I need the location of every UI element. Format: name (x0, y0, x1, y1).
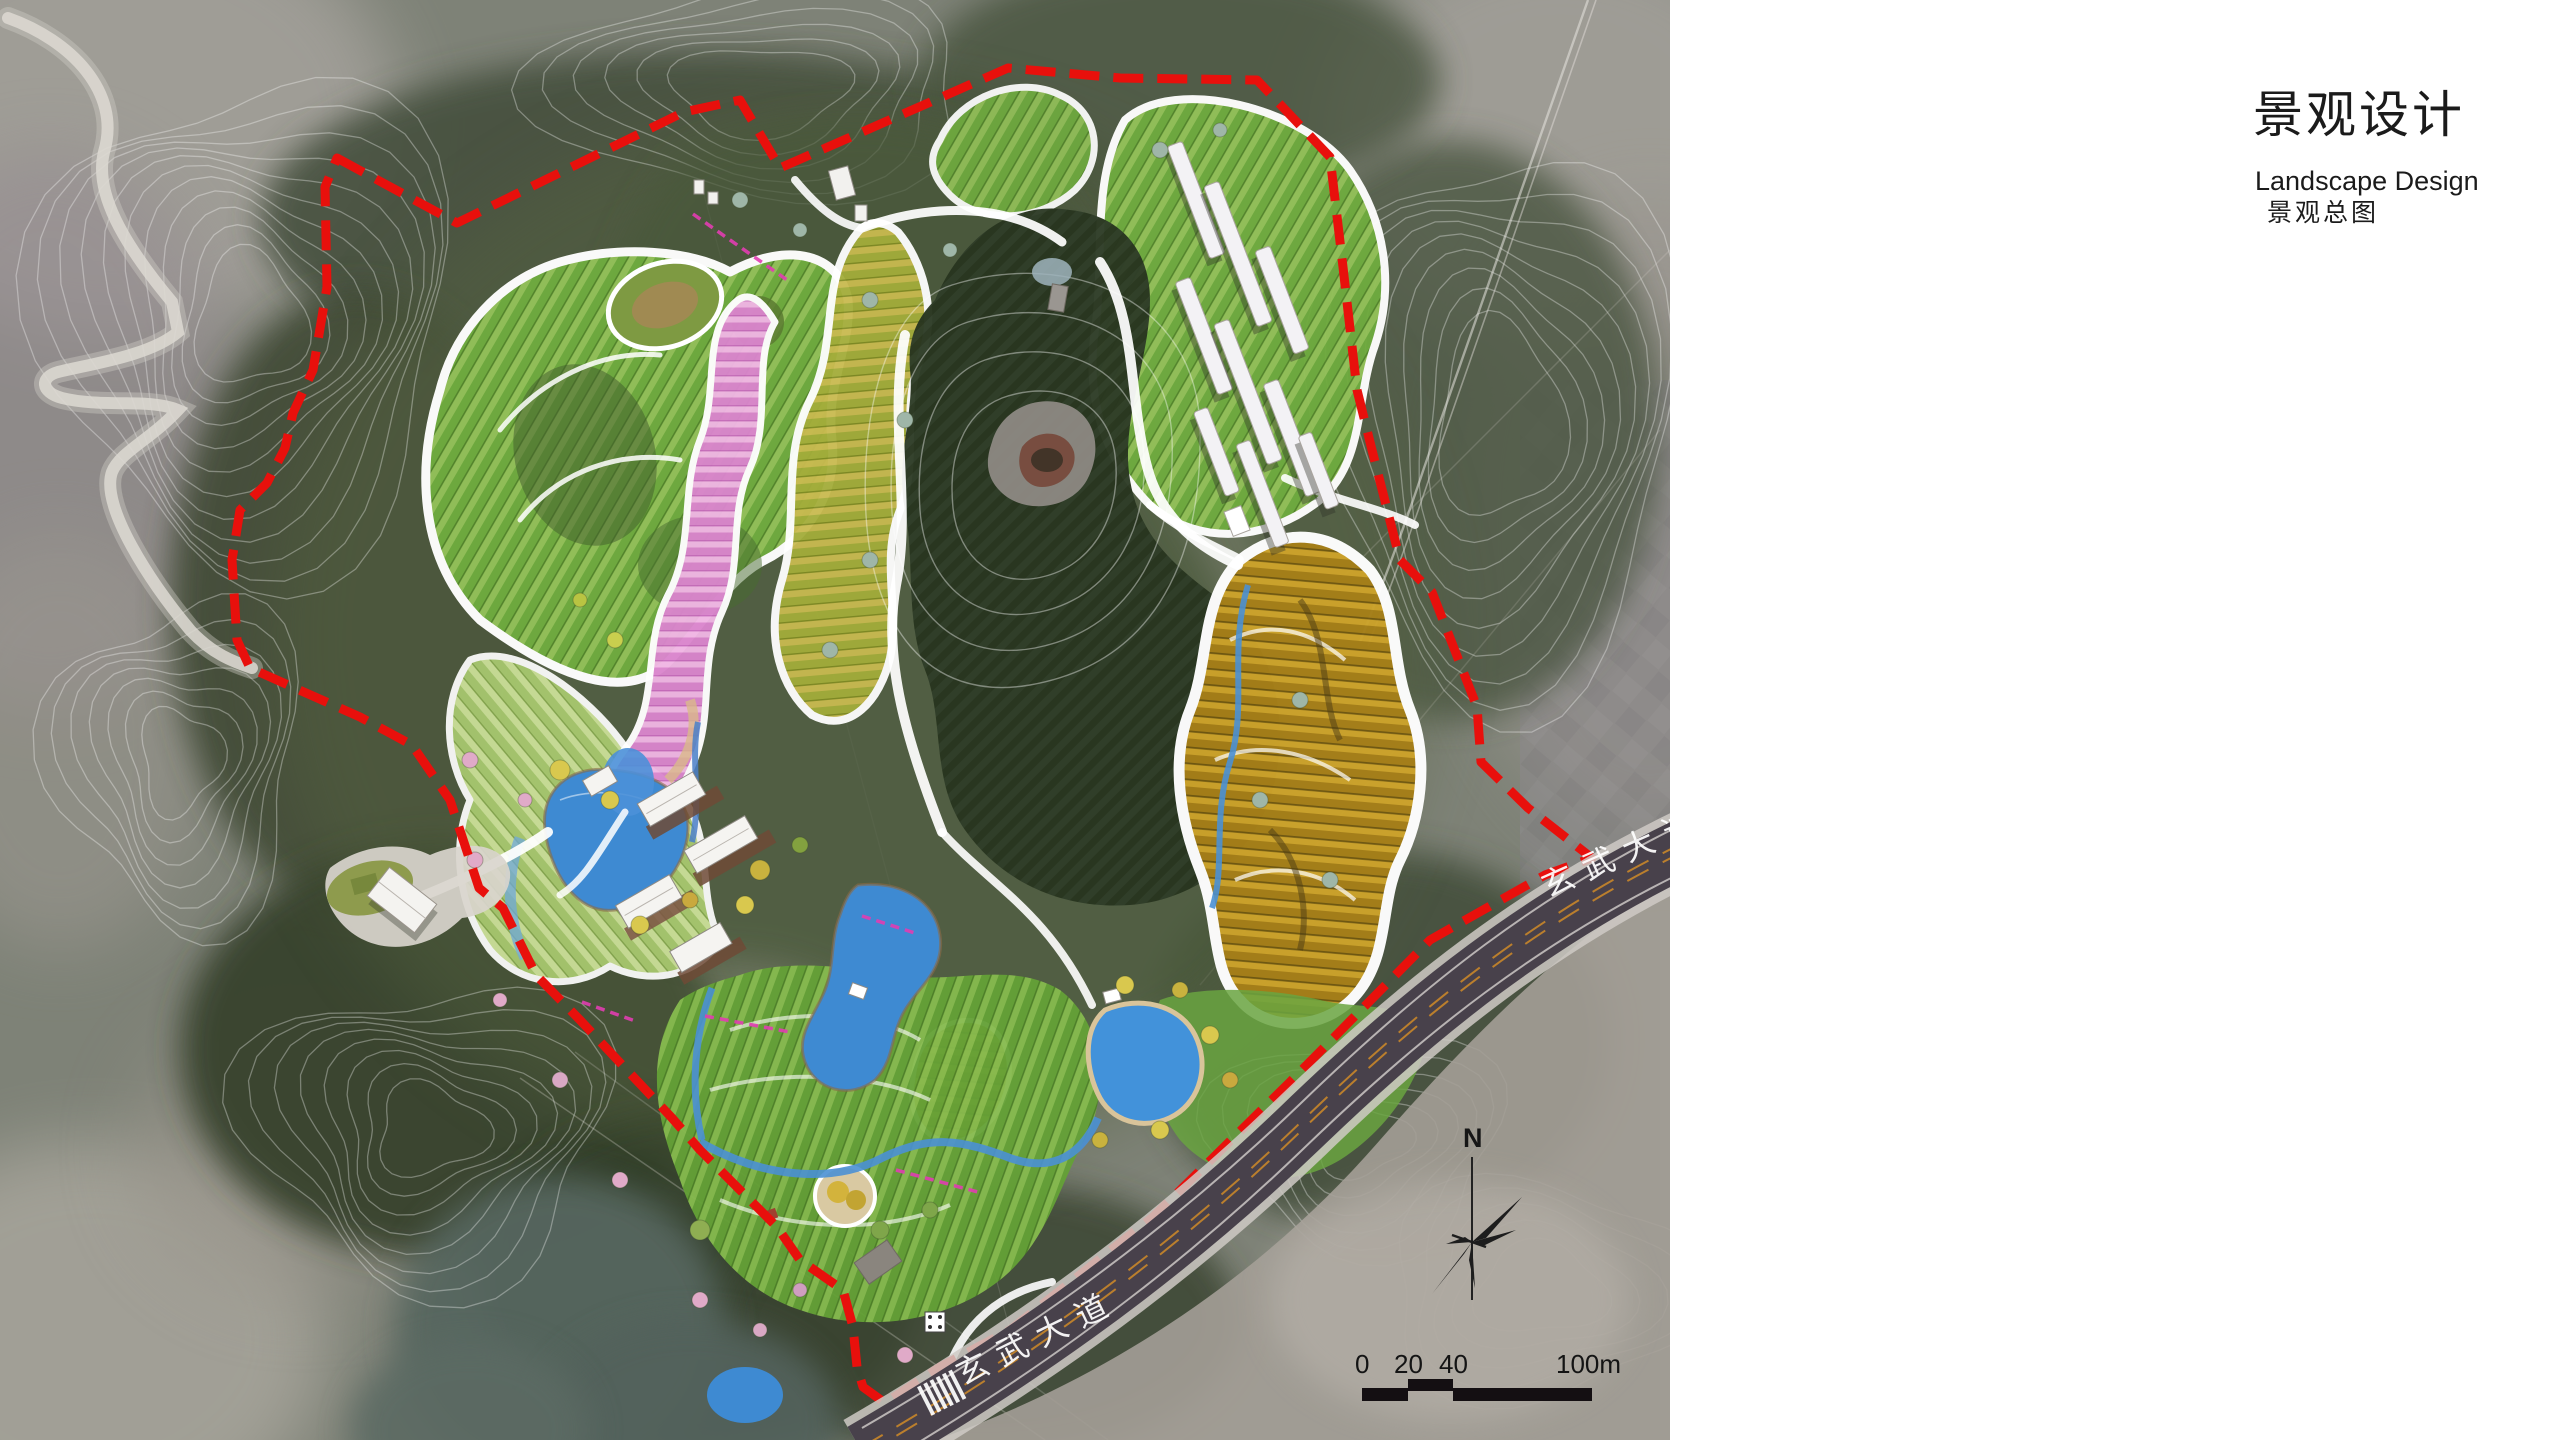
hut-north-b (855, 205, 867, 221)
hut-north-c (694, 180, 704, 194)
sheet-subtitle-zh: 景观总图 (2267, 200, 2479, 226)
presentation-sheet: 玄武大道 玄武大道 N 0 20 40 100m 景观设计 Landsc (0, 0, 2560, 1440)
scale-tick-40: 40 (1439, 1349, 1468, 1379)
north-label: N (1463, 1123, 1483, 1153)
gate-structure-south (925, 1312, 945, 1332)
sheet-subtitle-en: Landscape Design (2255, 167, 2479, 195)
scale-tick-0: 0 (1355, 1349, 1369, 1379)
pond-hilltop (1032, 258, 1072, 286)
site-plan-map: 玄武大道 玄武大道 N 0 20 40 100m (0, 0, 1670, 1440)
sheet-title: 景观设计 (2253, 88, 2479, 143)
title-block: 景观设计 Landscape Design 景观总图 (2253, 88, 2479, 227)
scale-tick-100m: 100m (1556, 1349, 1621, 1379)
pond-southeast (1088, 1003, 1202, 1123)
site-plan-svg: 玄武大道 玄武大道 N 0 20 40 100m (0, 0, 1670, 1440)
pond-south-small (707, 1367, 783, 1423)
scale-tick-20: 20 (1394, 1349, 1423, 1379)
